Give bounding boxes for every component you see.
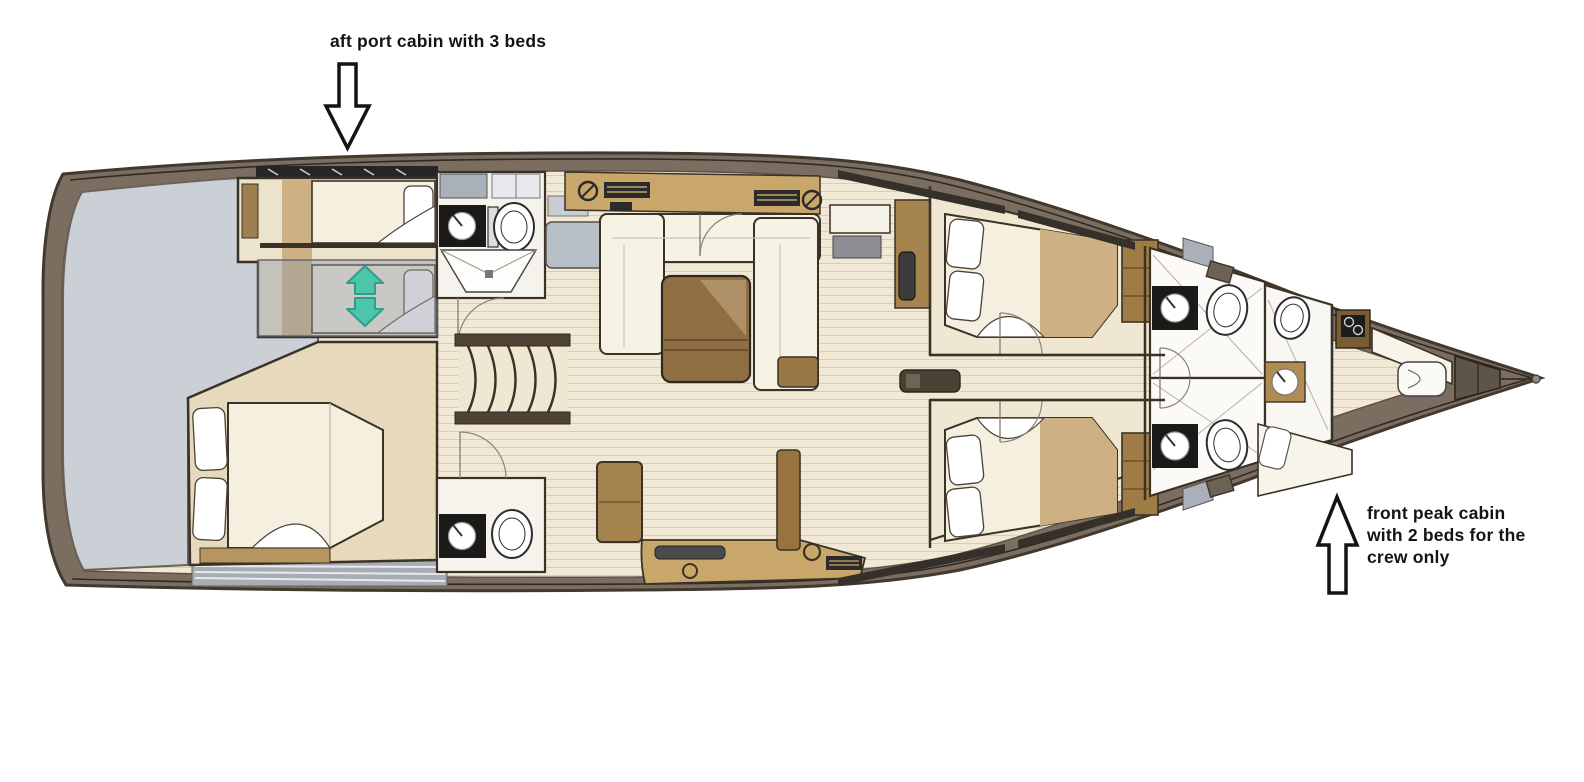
pillow [946,486,985,537]
counter [830,205,890,233]
annotation-front-cabin-line2: with 2 beds for the [1367,524,1525,546]
bow-seat [1398,362,1446,396]
annotation-front-cabin: front peak cabin with 2 beds for the cre… [1367,502,1525,568]
bench [200,548,330,563]
side-table [778,357,818,387]
window [440,174,487,198]
down-arrow-icon [326,64,369,148]
bed-upper [312,181,435,243]
vent-grille-icon [826,556,862,570]
annotation-front-cabin-line3: crew only [1367,546,1525,568]
sink [439,514,486,558]
corner-sink [1265,362,1305,402]
tall-cabinet [777,450,800,550]
up-arrow-icon [1318,497,1357,593]
yacht-floorplan: aft port cabin with 3 beds front peak ca… [0,0,1584,782]
companionway-stairs [455,334,570,424]
sink [1152,286,1198,330]
forward-bathroom-starboard [1150,378,1265,510]
hatch-rails [256,166,438,178]
sink [899,252,915,300]
pillow [192,477,227,541]
appliance [833,236,881,258]
mini-galley [1336,310,1370,348]
pillow [946,434,985,485]
sink [655,546,725,559]
nav-seat [546,222,604,268]
pillow [192,407,227,471]
toilet [492,510,532,558]
pillow [946,270,985,321]
anchor-fitting [1532,375,1540,383]
annotation-aft-cabin-label: aft port cabin with 3 beds [330,30,546,52]
toilet [488,203,534,251]
annotation-front-cabin-line1: front peak cabin [1367,502,1525,524]
sink [1152,424,1198,468]
aft-port-cabin [238,166,438,337]
salon-table [662,276,750,382]
pillow [946,218,985,269]
sliding-bed-overlay [258,260,437,336]
bed-divider [260,243,437,248]
cabinet [242,184,258,238]
floorplan-drawing [0,0,1584,782]
forward-bathroom-port [1150,238,1265,378]
annotation-aft-cabin: aft port cabin with 3 beds [330,30,546,52]
sink [439,205,486,247]
